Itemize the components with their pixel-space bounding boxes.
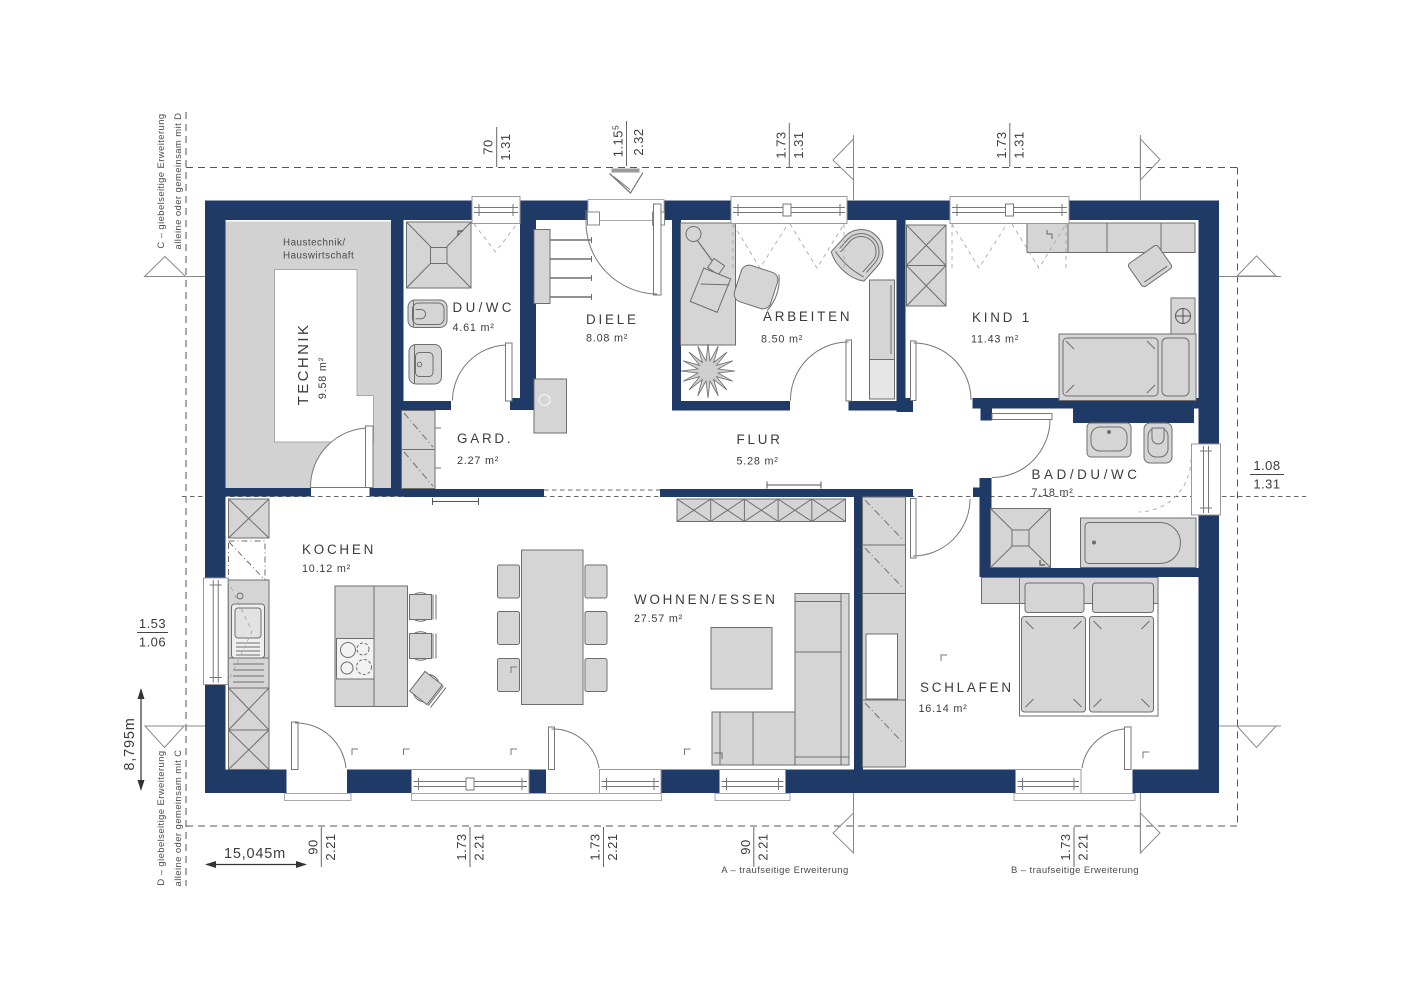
svg-text:9.58 m²: 9.58 m² bbox=[317, 357, 329, 399]
svg-text:alleine oder gemeinsam mit C: alleine oder gemeinsam mit C bbox=[173, 750, 184, 887]
svg-text:D – giebelseitige Erweiterung: D – giebelseitige Erweiterung bbox=[156, 750, 167, 885]
svg-text:2.21: 2.21 bbox=[755, 833, 770, 860]
svg-text:8.08 m²: 8.08 m² bbox=[586, 333, 628, 345]
svg-text:1.31: 1.31 bbox=[791, 131, 806, 158]
svg-text:8.50 m²: 8.50 m² bbox=[761, 334, 803, 346]
svg-text:1.31: 1.31 bbox=[1253, 477, 1280, 492]
svg-text:1.31: 1.31 bbox=[1011, 131, 1026, 158]
svg-text:1.73: 1.73 bbox=[588, 833, 603, 860]
svg-text:WOHNEN/ESSEN: WOHNEN/ESSEN bbox=[634, 592, 778, 607]
svg-text:SCHLAFEN: SCHLAFEN bbox=[920, 680, 1014, 695]
svg-text:BAD/DU/WC: BAD/DU/WC bbox=[1032, 467, 1141, 482]
svg-text:A – traufseitige Erweiterung: A – traufseitige Erweiterung bbox=[721, 865, 848, 876]
svg-text:Hauswirtschaft: Hauswirtschaft bbox=[283, 251, 354, 262]
svg-text:1.31: 1.31 bbox=[498, 133, 513, 160]
svg-text:90: 90 bbox=[305, 839, 320, 854]
svg-text:2.21: 2.21 bbox=[605, 833, 620, 860]
svg-text:B – traufseitige Erweiterung: B – traufseitige Erweiterung bbox=[1011, 865, 1139, 876]
svg-text:16.14 m²: 16.14 m² bbox=[919, 703, 968, 715]
svg-text:11.43 m²: 11.43 m² bbox=[971, 334, 1019, 346]
svg-text:1.53: 1.53 bbox=[139, 616, 166, 631]
svg-text:FLUR: FLUR bbox=[737, 432, 783, 447]
svg-text:90: 90 bbox=[738, 839, 753, 854]
svg-text:1.08: 1.08 bbox=[1253, 458, 1280, 473]
svg-text:TECHNIK: TECHNIK bbox=[295, 323, 312, 406]
svg-text:ARBEITEN: ARBEITEN bbox=[763, 309, 852, 324]
svg-text:10.12 m²: 10.12 m² bbox=[302, 563, 351, 575]
svg-text:DU/WC: DU/WC bbox=[453, 300, 515, 315]
svg-text:2.21: 2.21 bbox=[323, 833, 338, 860]
svg-text:2.27 m²: 2.27 m² bbox=[457, 455, 499, 467]
svg-text:7.18 m²: 7.18 m² bbox=[1032, 487, 1074, 499]
svg-text:alleine oder gemeinsam mit D: alleine oder gemeinsam mit D bbox=[173, 113, 184, 250]
svg-text:1.73: 1.73 bbox=[773, 131, 788, 158]
svg-text:C – giebelseitige Erweiterung: C – giebelseitige Erweiterung bbox=[156, 113, 167, 248]
svg-text:DIELE: DIELE bbox=[586, 312, 639, 327]
svg-text:GARD.: GARD. bbox=[457, 431, 513, 446]
svg-text:1.73: 1.73 bbox=[994, 131, 1009, 158]
svg-text:Haustechnik/: Haustechnik/ bbox=[283, 238, 346, 249]
svg-text:5.28 m²: 5.28 m² bbox=[737, 456, 779, 468]
svg-text:2.21: 2.21 bbox=[1076, 833, 1091, 860]
svg-text:1.06: 1.06 bbox=[139, 635, 166, 650]
svg-text:70: 70 bbox=[481, 139, 496, 154]
svg-text:1.73: 1.73 bbox=[1058, 833, 1073, 860]
svg-text:KIND 1: KIND 1 bbox=[972, 310, 1032, 325]
svg-text:KOCHEN: KOCHEN bbox=[302, 542, 376, 557]
svg-text:4.61 m²: 4.61 m² bbox=[453, 322, 495, 334]
svg-text:1.73: 1.73 bbox=[454, 833, 469, 860]
svg-text:15,045m: 15,045m bbox=[224, 846, 286, 862]
svg-text:2.32: 2.32 bbox=[631, 128, 646, 155]
svg-text:2.21: 2.21 bbox=[472, 833, 487, 860]
svg-text:27.57 m²: 27.57 m² bbox=[634, 613, 683, 625]
svg-text:8,795m: 8,795m bbox=[122, 717, 138, 770]
